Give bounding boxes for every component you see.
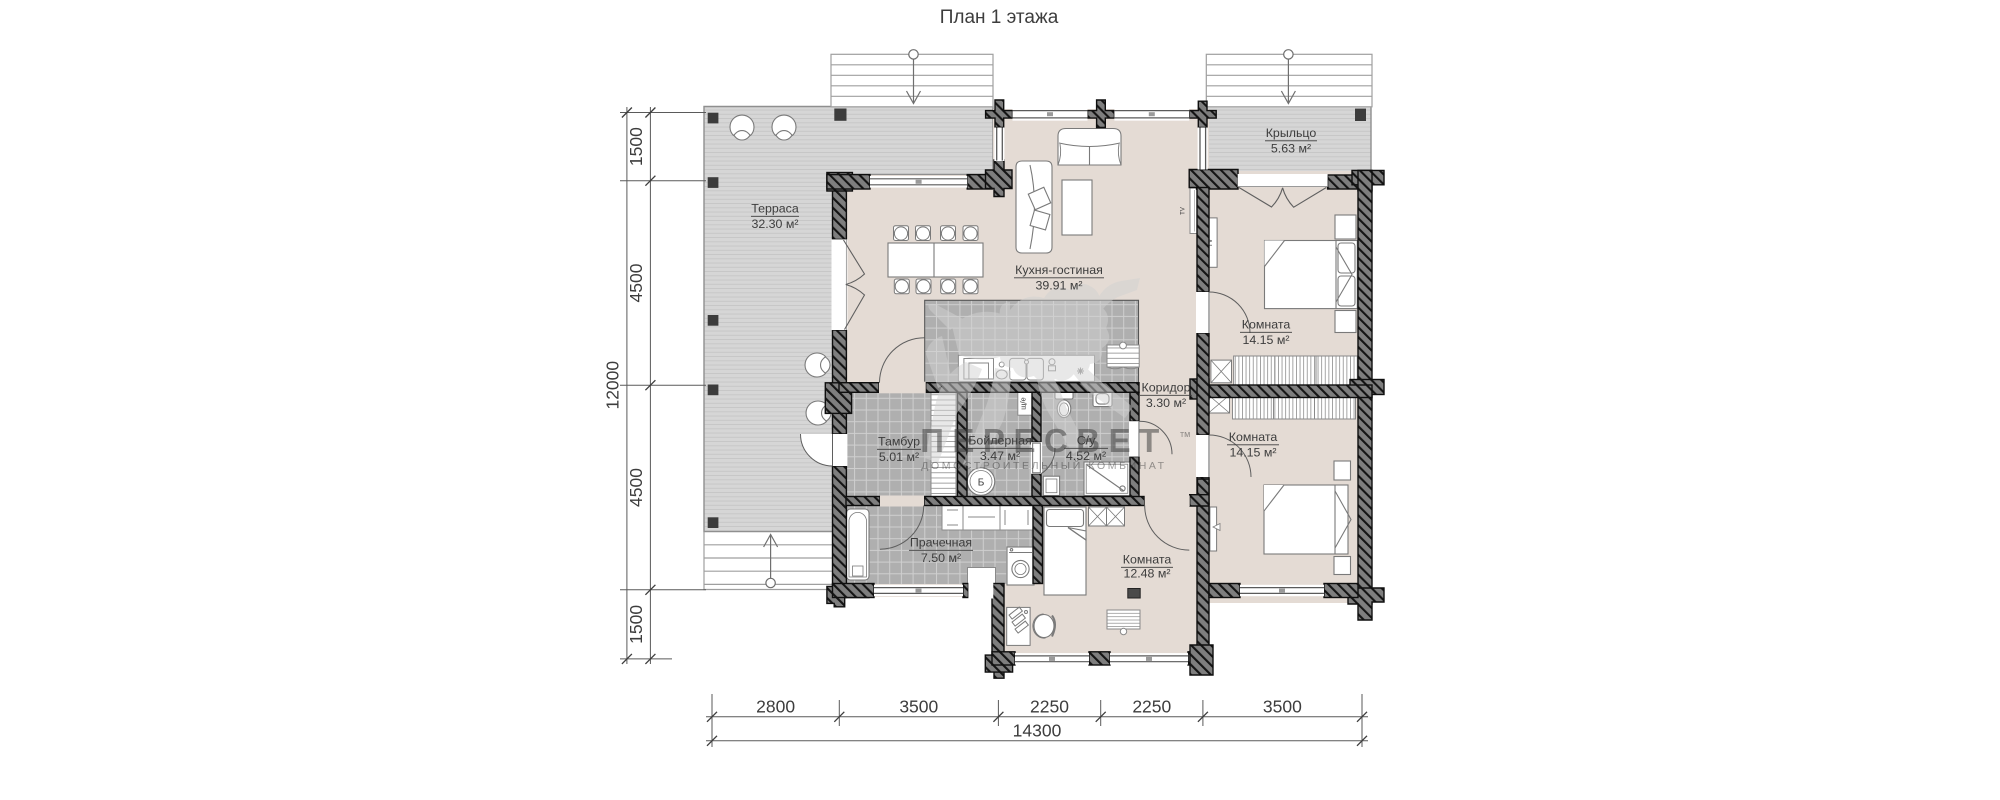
svg-text:14.15 м²: 14.15 м² bbox=[1242, 333, 1289, 347]
svg-text:Терраса: Терраса bbox=[751, 202, 799, 216]
svg-text:1500: 1500 bbox=[626, 605, 646, 644]
svg-text:4500: 4500 bbox=[626, 468, 646, 507]
svg-text:С/у: С/у bbox=[1077, 434, 1096, 448]
svg-text:14300: 14300 bbox=[1013, 720, 1062, 740]
svg-text:14.15 м²: 14.15 м² bbox=[1229, 446, 1276, 460]
svg-text:Комната: Комната bbox=[1229, 430, 1278, 444]
svg-text:План 1 этажа: План 1 этажа bbox=[940, 7, 1059, 28]
svg-text:5.63 м²: 5.63 м² bbox=[1271, 142, 1311, 156]
svg-text:7.50 м²: 7.50 м² bbox=[921, 551, 961, 565]
svg-text:Кухня-гостиная: Кухня-гостиная bbox=[1015, 263, 1103, 277]
svg-text:12.48 м²: 12.48 м² bbox=[1123, 567, 1170, 581]
svg-text:Прачечная: Прачечная bbox=[910, 536, 972, 550]
svg-text:2800: 2800 bbox=[756, 696, 795, 716]
svg-text:1500: 1500 bbox=[626, 127, 646, 166]
svg-text:TV: TV bbox=[1181, 207, 1187, 215]
svg-text:Комната: Комната bbox=[1242, 318, 1291, 332]
svg-text:5.01 м²: 5.01 м² bbox=[879, 450, 919, 464]
svg-text:3.30 м²: 3.30 м² bbox=[1146, 396, 1186, 410]
svg-text:щ/е: щ/е bbox=[1019, 397, 1028, 409]
svg-text:Б: Б bbox=[978, 478, 985, 489]
svg-text:32.30 м²: 32.30 м² bbox=[751, 217, 798, 231]
svg-text:4500: 4500 bbox=[626, 263, 646, 302]
svg-text:4.52 м²: 4.52 м² bbox=[1066, 449, 1106, 463]
svg-text:12000: 12000 bbox=[603, 361, 623, 410]
svg-text:2250: 2250 bbox=[1132, 696, 1171, 716]
svg-text:2250: 2250 bbox=[1030, 696, 1069, 716]
svg-text:3.47 м²: 3.47 м² bbox=[980, 449, 1020, 463]
svg-text:ПЕРЕСВЕТ: ПЕРЕСВЕТ bbox=[920, 422, 1168, 459]
svg-text:Комната: Комната bbox=[1123, 553, 1172, 567]
svg-text:тм: тм bbox=[1180, 429, 1190, 439]
svg-text:39.91 м²: 39.91 м² bbox=[1035, 279, 1082, 293]
svg-text:Крыльцо: Крыльцо bbox=[1266, 126, 1317, 140]
svg-text:3500: 3500 bbox=[899, 696, 938, 716]
svg-text:3500: 3500 bbox=[1263, 696, 1302, 716]
svg-text:ДОМОСТРОИТЕЛЬНЫЙ КОМБИНАТ: ДОМОСТРОИТЕЛЬНЫЙ КОМБИНАТ bbox=[921, 459, 1166, 472]
svg-text:Тамбур: Тамбур bbox=[878, 435, 920, 449]
svg-text:Бойлерная: Бойлерная bbox=[968, 434, 1031, 448]
svg-text:Коридор: Коридор bbox=[1142, 381, 1191, 395]
